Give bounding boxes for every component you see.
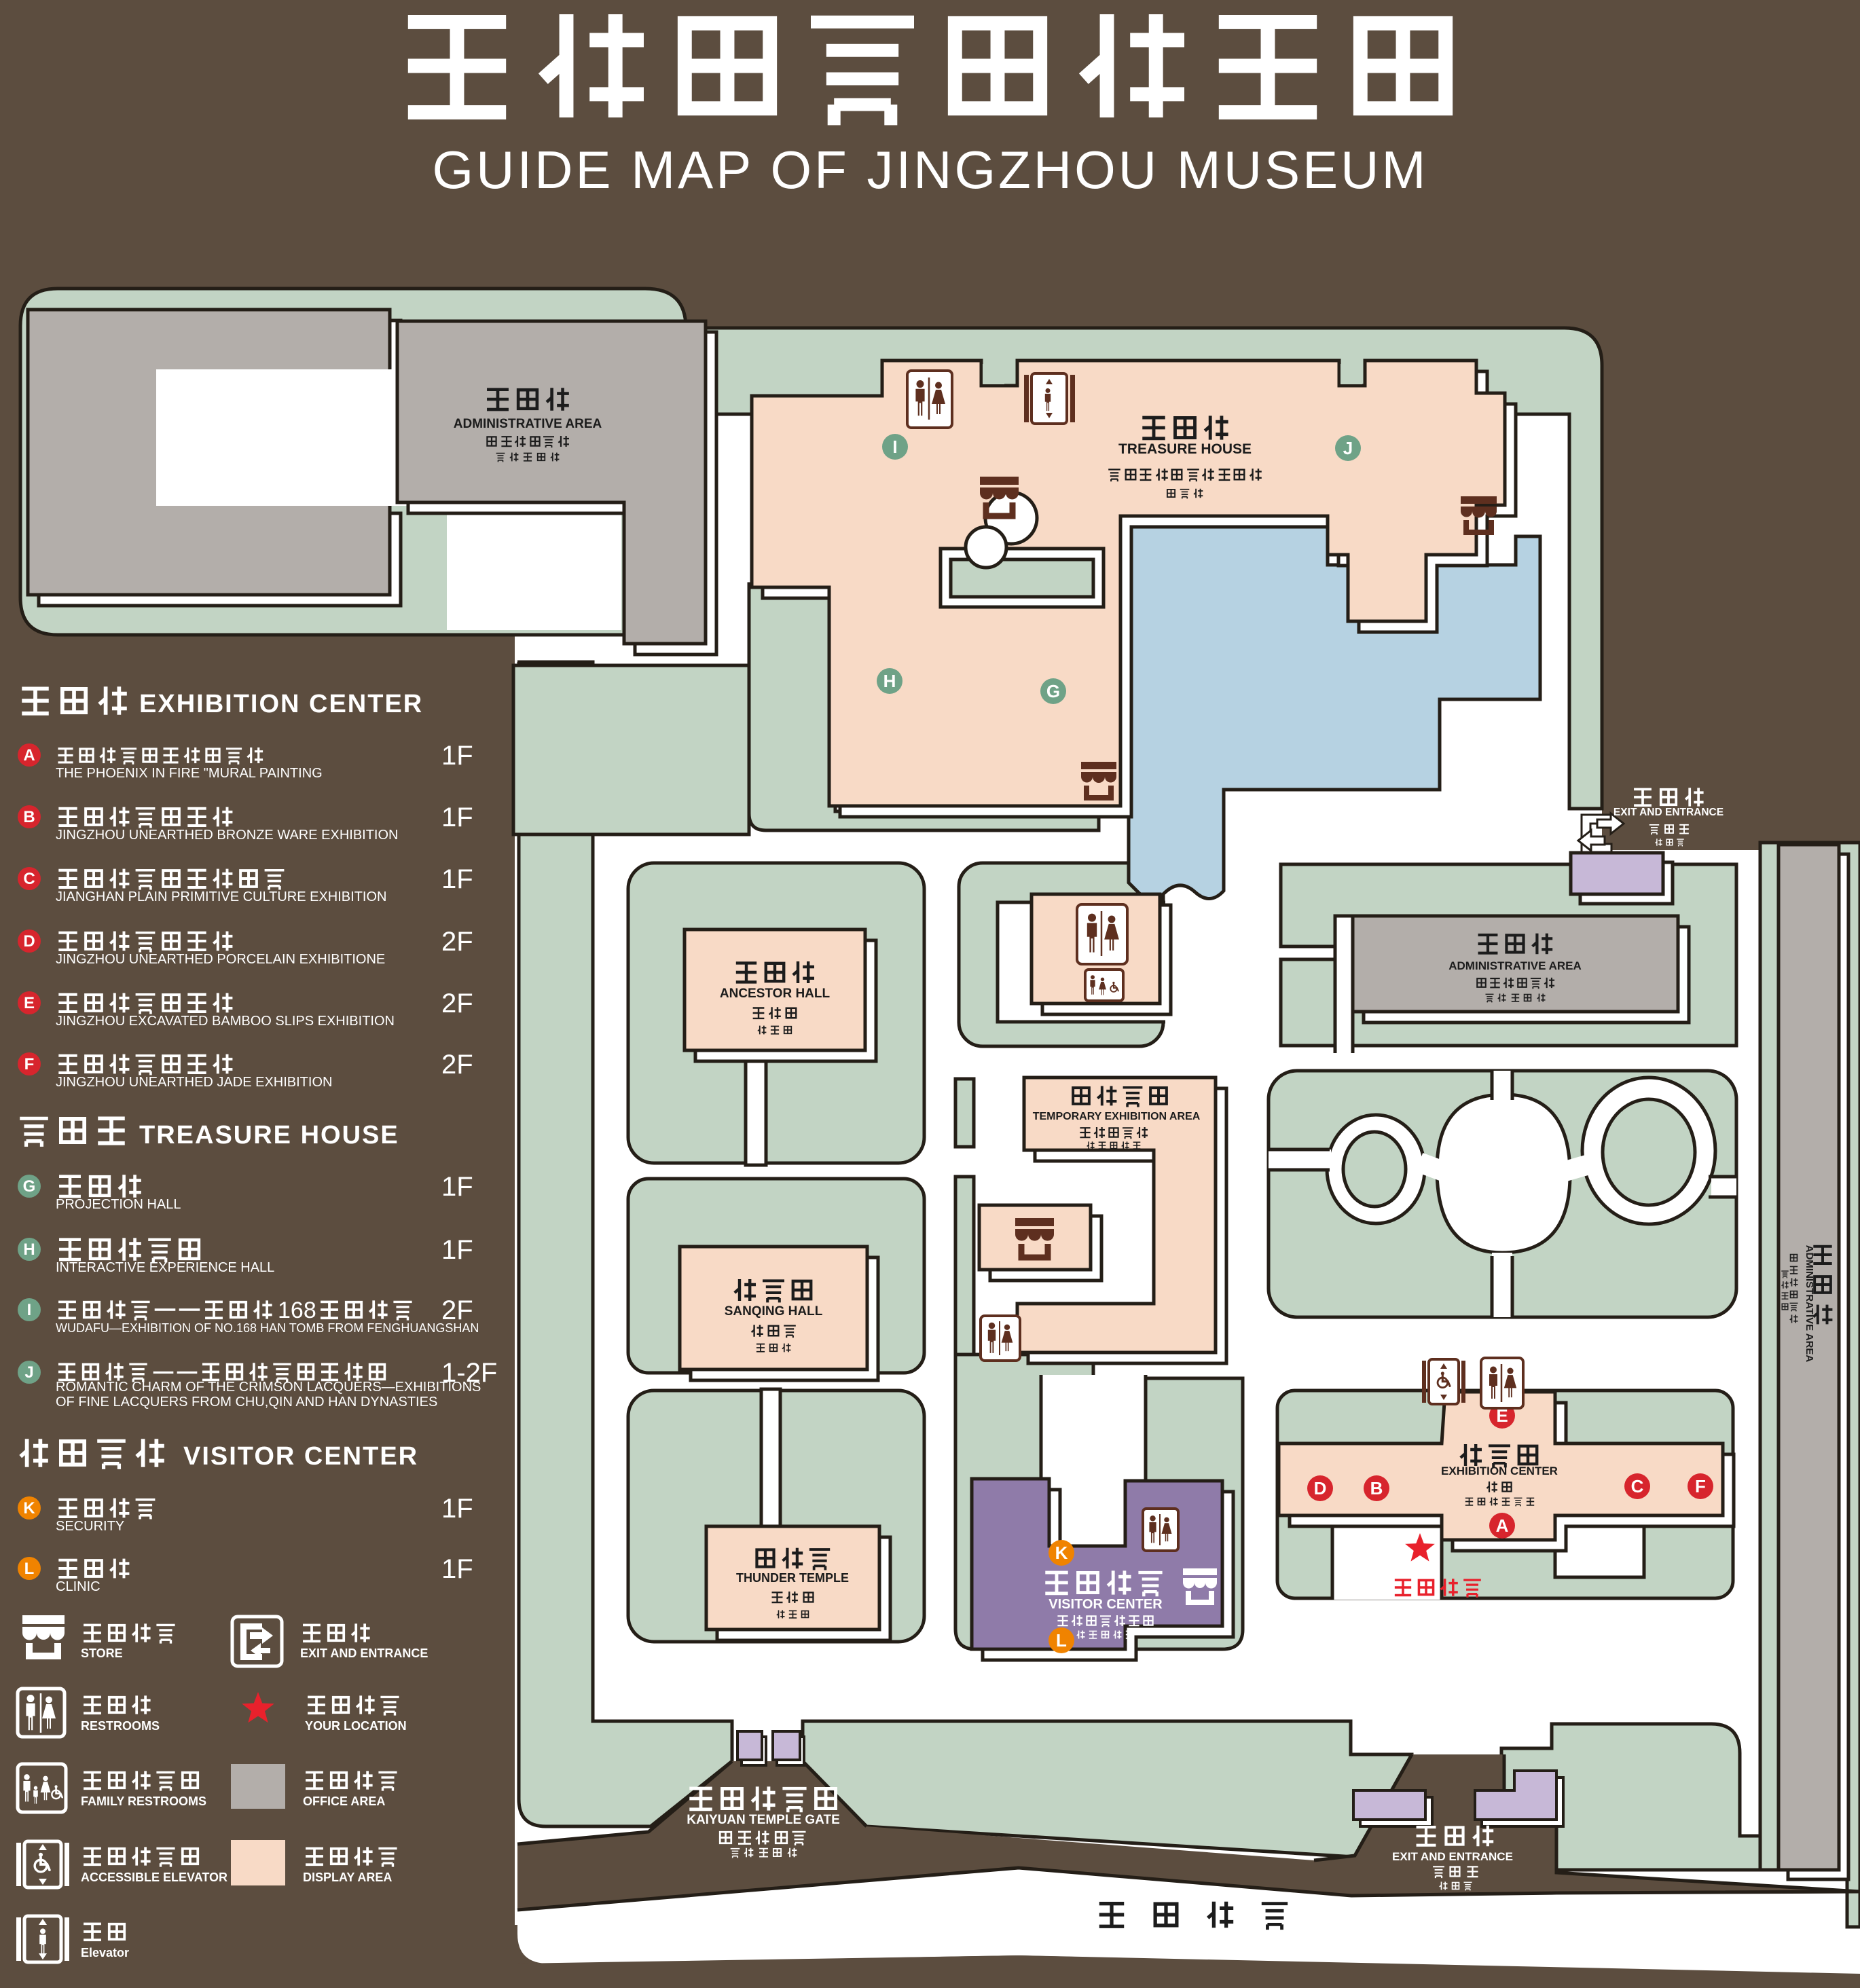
svg-text:1F: 1F — [441, 803, 473, 832]
svg-text:VISITOR CENTER: VISITOR CENTER — [1048, 1597, 1163, 1612]
svg-text:2F: 2F — [441, 989, 473, 1018]
svg-text:OF FINE LACQUERS FROM CHU,QIN: OF FINE LACQUERS FROM CHU,QIN AND HAN DY… — [56, 1395, 437, 1410]
svg-text:2F: 2F — [441, 1295, 473, 1325]
svg-text:EXIT AND ENTRANCE: EXIT AND ENTRANCE — [1392, 1850, 1513, 1863]
svg-text:EXIT AND ENTRANCE: EXIT AND ENTRANCE — [1613, 807, 1724, 818]
svg-text:ROMANTIC CHARM OF THE CRIMSON: ROMANTIC CHARM OF THE CRIMSON LACQUERS—E… — [56, 1380, 481, 1395]
svg-text:B: B — [1370, 1478, 1383, 1498]
svg-text:1F: 1F — [441, 864, 473, 894]
svg-text:ADMINISTRATIVE AREA: ADMINISTRATIVE AREA — [454, 417, 602, 431]
svg-text:D: D — [1314, 1478, 1327, 1498]
svg-text:1F: 1F — [441, 1172, 473, 1202]
svg-text:SANQING HALL: SANQING HALL — [725, 1304, 823, 1319]
svg-text:THUNDER TEMPLE: THUNDER TEMPLE — [736, 1571, 849, 1585]
svg-text:JIANGHAN PLAIN PRIMITIVE CULTU: JIANGHAN PLAIN PRIMITIVE CULTURE EXHIBIT… — [56, 889, 386, 904]
svg-text:EXIT AND ENTRANCE: EXIT AND ENTRANCE — [300, 1646, 428, 1660]
svg-text:A: A — [1496, 1515, 1509, 1536]
svg-text:OFFICE AREA: OFFICE AREA — [303, 1794, 385, 1808]
svg-text:I: I — [892, 437, 897, 457]
svg-text:B: B — [23, 808, 35, 826]
svg-text:VISITOR CENTER: VISITOR CENTER — [183, 1442, 418, 1471]
svg-text:ANCESTOR HALL: ANCESTOR HALL — [720, 987, 831, 1001]
svg-text:EXHIBITION CENTER: EXHIBITION CENTER — [139, 690, 423, 718]
svg-text:2F: 2F — [441, 1050, 473, 1080]
svg-text:ADMINISTRATIVE AREA: ADMINISTRATIVE AREA — [1448, 959, 1582, 972]
svg-text:J: J — [24, 1363, 33, 1382]
svg-text:CLINIC: CLINIC — [56, 1579, 101, 1594]
svg-text:F: F — [1695, 1476, 1706, 1496]
svg-text:DISPLAY AREA: DISPLAY AREA — [303, 1871, 392, 1884]
svg-text:G: G — [23, 1177, 36, 1196]
svg-text:SECURITY: SECURITY — [56, 1519, 124, 1534]
svg-text:TEMPORARY EXHIBITION AREA: TEMPORARY EXHIBITION AREA — [1033, 1111, 1201, 1122]
svg-text:GUIDE MAP OF JINGZHOU MUSEUM: GUIDE MAP OF JINGZHOU MUSEUM — [433, 140, 1429, 200]
svg-text:PROJECTION HALL: PROJECTION HALL — [56, 1197, 181, 1212]
svg-text:JINGZHOU UNEARTHED PORCELAIN E: JINGZHOU UNEARTHED PORCELAIN EXHIBITIONE — [56, 952, 385, 967]
svg-text:L: L — [24, 1560, 35, 1578]
svg-text:K: K — [23, 1499, 35, 1517]
svg-text:G: G — [1046, 681, 1060, 701]
svg-text:H: H — [23, 1240, 35, 1259]
svg-text:KAIYUAN TEMPLE GATE: KAIYUAN TEMPLE GATE — [687, 1813, 840, 1827]
svg-text:EXHIBITION CENTER: EXHIBITION CENTER — [1441, 1465, 1558, 1477]
svg-text:JINGZHOU UNEARTHED JADE EXHIBI: JINGZHOU UNEARTHED JADE EXHIBITION — [56, 1075, 332, 1090]
svg-text:C: C — [1631, 1476, 1644, 1496]
svg-text:JINGZHOU EXCAVATED BAMBOO SLIP: JINGZHOU EXCAVATED BAMBOO SLIPS EXHIBITI… — [56, 1014, 395, 1029]
svg-text:1-2F: 1-2F — [441, 1358, 497, 1388]
svg-text:168: 168 — [278, 1297, 316, 1323]
svg-text:TREASURE HOUSE: TREASURE HOUSE — [139, 1121, 399, 1149]
svg-text:K: K — [1055, 1543, 1068, 1563]
svg-text:J: J — [1343, 438, 1353, 458]
svg-text:RESTROOMS: RESTROOMS — [81, 1719, 160, 1733]
svg-text:JINGZHOU UNEARTHED BRONZE WARE: JINGZHOU UNEARTHED BRONZE WARE EXHIBITIO… — [56, 828, 398, 843]
svg-text:TREASURE HOUSE: TREASURE HOUSE — [1118, 441, 1252, 457]
svg-text:E: E — [24, 994, 35, 1012]
svg-text:ACCESSIBLE ELEVATOR: ACCESSIBLE ELEVATOR — [81, 1871, 227, 1884]
svg-text:YOUR LOCATION: YOUR LOCATION — [305, 1719, 407, 1733]
svg-text:D: D — [23, 932, 35, 951]
svg-text:H: H — [883, 671, 896, 691]
svg-text:INTERACTIVE EXPERIENCE HALL: INTERACTIVE EXPERIENCE HALL — [56, 1260, 274, 1275]
svg-text:1F: 1F — [441, 1235, 473, 1265]
svg-text:2F: 2F — [441, 927, 473, 957]
svg-text:1F: 1F — [441, 1554, 473, 1584]
svg-text:ADMINISTRATIVE AREA: ADMINISTRATIVE AREA — [1804, 1245, 1815, 1363]
svg-text:F: F — [24, 1055, 35, 1073]
svg-text:FAMILY RESTROOMS: FAMILY RESTROOMS — [81, 1794, 206, 1808]
svg-text:C: C — [23, 870, 35, 888]
svg-text:1F: 1F — [441, 1494, 473, 1524]
svg-text:I: I — [27, 1301, 32, 1319]
svg-text:Elevator: Elevator — [81, 1946, 129, 1959]
svg-text:WUDAFU—EXHIBITION OF NO.168 HA: WUDAFU—EXHIBITION OF NO.168 HAN TOMB FRO… — [56, 1321, 479, 1335]
svg-text:1F: 1F — [441, 741, 473, 771]
svg-text:THE PHOENIX IN FIRE "MURAL PAI: THE PHOENIX IN FIRE "MURAL PAINTING — [56, 766, 323, 781]
svg-text:L: L — [1056, 1630, 1067, 1651]
svg-text:A: A — [23, 746, 35, 765]
svg-text:STORE: STORE — [81, 1646, 123, 1660]
